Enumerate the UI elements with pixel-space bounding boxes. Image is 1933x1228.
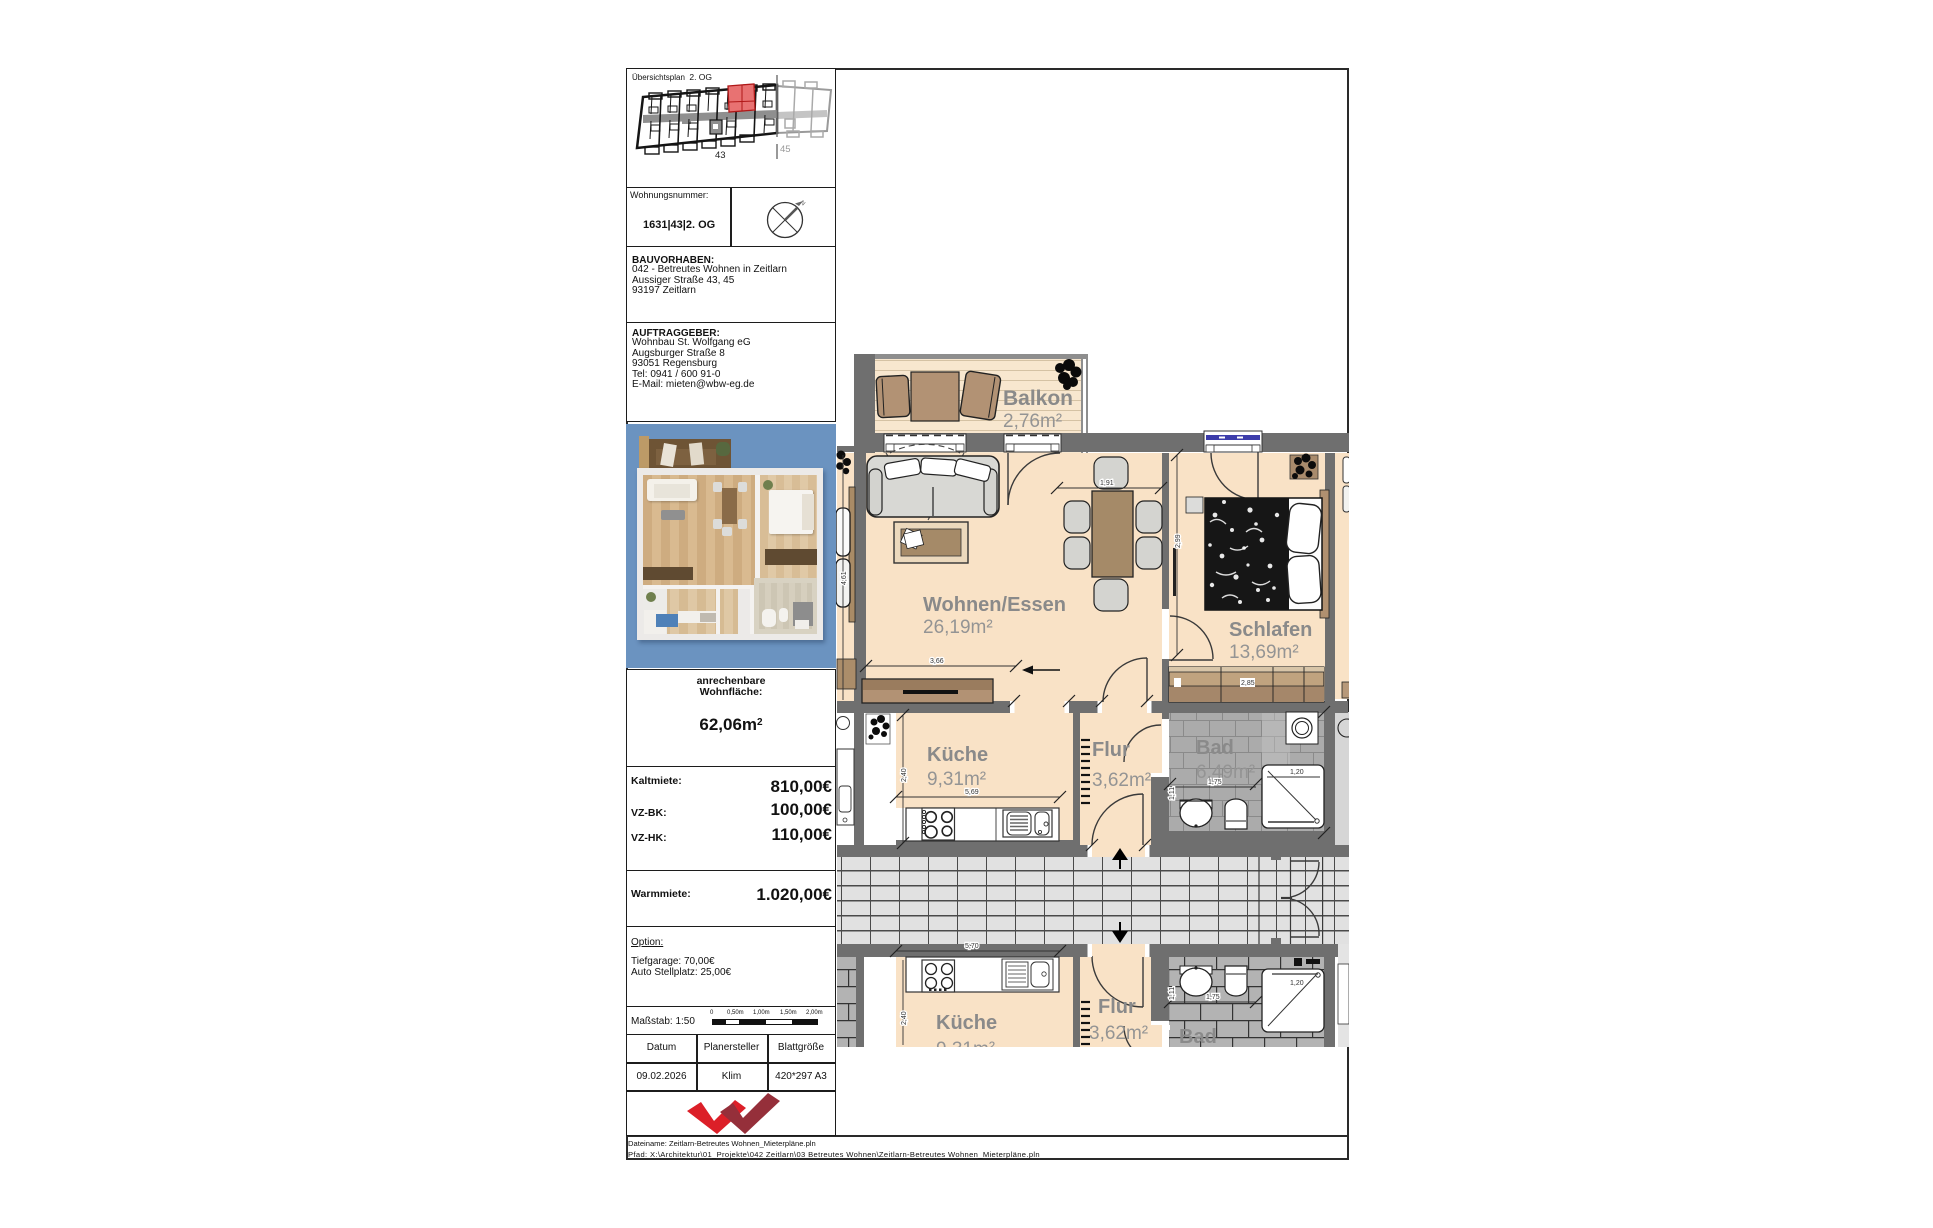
svg-text:3,62m²: 3,62m² — [1092, 770, 1151, 791]
svg-text:3,62m²: 3,62m² — [1089, 1023, 1148, 1044]
svg-text:2,40: 2,40 — [901, 768, 908, 782]
svg-text:1,91: 1,91 — [1100, 480, 1114, 487]
svg-text:Balkon: Balkon — [1003, 387, 1073, 410]
svg-text:5,70: 5,70 — [965, 943, 979, 950]
svg-text:N: N — [799, 200, 806, 207]
svg-text:2,85: 2,85 — [1241, 680, 1255, 687]
svg-text:45: 45 — [780, 144, 791, 155]
svg-text:Küche: Küche — [927, 744, 988, 766]
svg-text:Wohnen/Essen: Wohnen/Essen — [923, 594, 1066, 616]
svg-text:2,76m²: 2,76m² — [1003, 411, 1062, 432]
svg-text:Bad: Bad — [1196, 737, 1234, 759]
svg-text:5,69: 5,69 — [965, 789, 979, 796]
svg-text:13,69m²: 13,69m² — [1229, 642, 1299, 663]
svg-text:Flur: Flur — [1092, 739, 1130, 761]
svg-text:1,11: 1,11 — [1169, 987, 1176, 1000]
svg-text:1,75: 1,75 — [1206, 994, 1220, 1001]
svg-text:9,31m²: 9,31m² — [927, 769, 986, 790]
svg-text:1,20: 1,20 — [1290, 980, 1304, 987]
svg-text:6,49m²: 6,49m² — [1196, 762, 1255, 783]
svg-text:4,61: 4,61 — [841, 571, 848, 585]
svg-text:Küche: Küche — [936, 1012, 997, 1034]
svg-text:1,20: 1,20 — [1290, 769, 1304, 776]
svg-text:3,66: 3,66 — [930, 658, 944, 665]
svg-text:Flur: Flur — [1098, 996, 1136, 1018]
svg-text:2,99: 2,99 — [1175, 534, 1182, 548]
svg-text:1,11: 1,11 — [1169, 787, 1176, 800]
svg-text:43: 43 — [715, 150, 726, 161]
svg-text:26,19m²: 26,19m² — [923, 617, 993, 638]
svg-text:Bad: Bad — [1179, 1026, 1217, 1047]
svg-text:Schlafen: Schlafen — [1229, 619, 1312, 641]
svg-text:9,31m²: 9,31m² — [936, 1039, 995, 1047]
svg-text:2,40: 2,40 — [901, 1011, 908, 1025]
